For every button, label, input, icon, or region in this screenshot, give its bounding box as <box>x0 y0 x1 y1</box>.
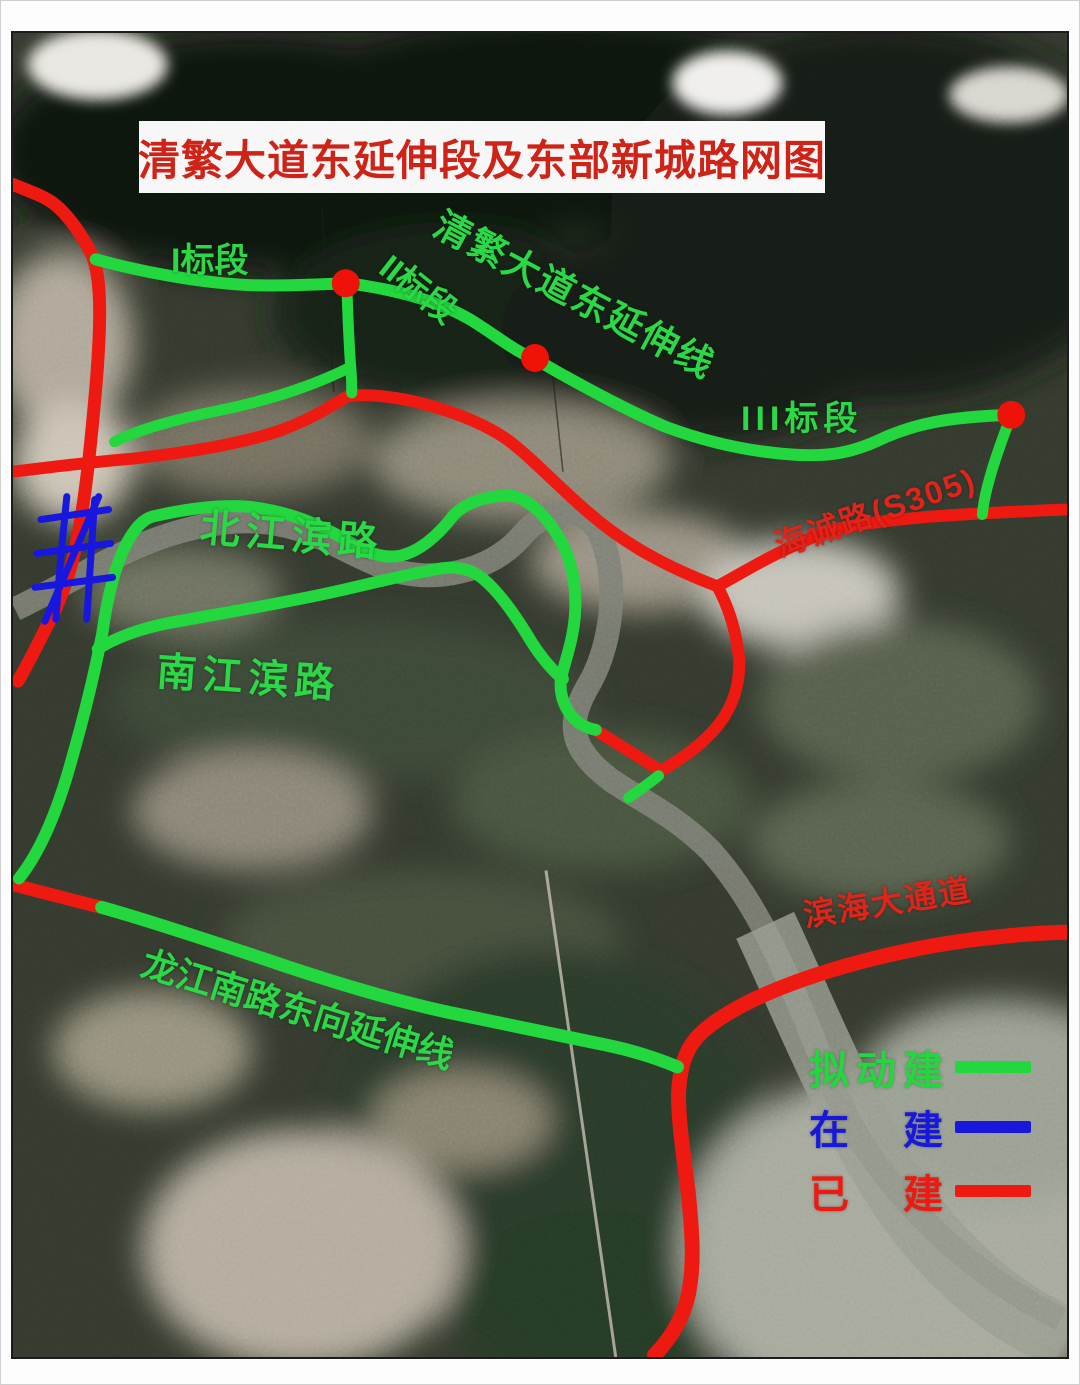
legend-item-planned: 拟动建 <box>809 1038 1031 1096</box>
legend-label-built: 已 建 <box>809 1162 943 1220</box>
legend-swatch-built-line <box>955 1185 1031 1197</box>
legend-swatch-under-construction-line <box>955 1121 1031 1133</box>
legend-item-under-construction: 在 建 <box>809 1098 1031 1156</box>
junction-dot-2 <box>521 344 549 372</box>
label-section-3: III标段 <box>741 391 862 440</box>
junction-dot-1 <box>332 269 360 297</box>
legend-label-planned: 拟动建 <box>809 1038 943 1096</box>
junction-dot-3 <box>997 401 1025 429</box>
page: 清繁大道东延伸段及东部新城路网图 I标段 II标段 清繁大道东延伸线 III标段… <box>0 0 1080 1385</box>
map-title-box: 清繁大道东延伸段及东部新城路网图 <box>139 121 825 193</box>
route-section1-connector-planned <box>347 283 352 393</box>
legend-item-built: 已 建 <box>809 1162 1031 1220</box>
legend-swatch-planned-line <box>955 1061 1031 1073</box>
legend-label-under-construction: 在 建 <box>809 1098 943 1156</box>
label-section-1: I标段 <box>171 233 248 282</box>
satellite-map: 清繁大道东延伸段及东部新城路网图 I标段 II标段 清繁大道东延伸线 III标段… <box>11 31 1069 1359</box>
map-title: 清繁大道东延伸段及东部新城路网图 <box>138 127 826 188</box>
